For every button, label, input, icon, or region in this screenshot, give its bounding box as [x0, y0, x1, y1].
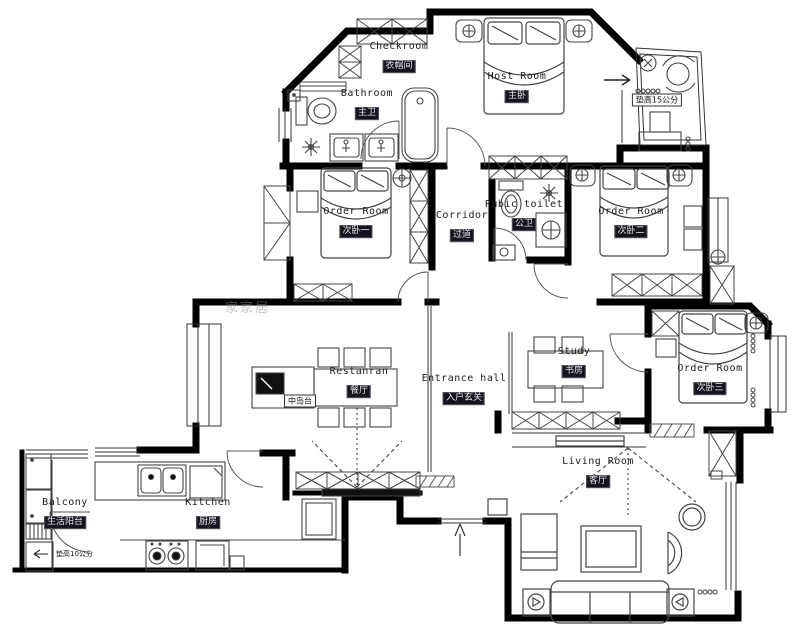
room-name-en: Corridor: [436, 210, 488, 222]
watermark: 家家居: [225, 297, 270, 316]
room-name-cn: 衣帽间: [382, 60, 415, 73]
room-label-balcony: Balcony生活阳台: [42, 497, 88, 529]
room-label-kitchen: Kitchen厨房: [185, 497, 231, 529]
room-label-order-room-1: Order Room次卧一: [323, 206, 388, 238]
room-name-cn: 次卧二: [614, 225, 647, 238]
misc-icons: [300, 82, 346, 91]
room-label-bathroom: Bathroom主卫: [341, 88, 393, 120]
room-label-corridor: Corridor过道: [436, 210, 488, 242]
room-name-cn: 主卫: [355, 107, 379, 120]
room-label-entrance-hall: Entrance hall入户玄关: [422, 373, 507, 405]
room-name-cn: 客厅: [586, 475, 610, 488]
room-name-en: Bathroom: [341, 88, 393, 100]
annotation-island: 中岛台: [284, 395, 316, 408]
room-name-cn: 餐厅: [347, 385, 371, 398]
stove-icon: [146, 541, 188, 570]
room-name-en: Study: [558, 346, 591, 358]
room-name-en: Pubic toilet: [485, 199, 563, 211]
room-name-cn: 次卧三: [693, 382, 726, 395]
room-label-order-room-3: Order Room次卧三: [677, 363, 742, 395]
armchair-icon: [668, 532, 682, 574]
speaker-left-icon: [523, 589, 550, 616]
media-cabinet-icon: [521, 514, 557, 570]
annotation-raise-15: 垫高15公分: [632, 94, 682, 107]
room-name-en: Restanran: [330, 366, 389, 378]
room-label-restaurant: Restanran餐厅: [330, 366, 389, 398]
room-name-cn: 次卧一: [339, 225, 372, 238]
room-name-en: Balcony: [42, 497, 88, 509]
room-label-public-toilet: Pubic toilet公卫: [485, 199, 563, 231]
room-name-en: Order Room: [323, 206, 388, 218]
room-name-cn: 过道: [450, 229, 474, 242]
room-name-en: Entrance hall: [422, 373, 507, 385]
room-name-en: Host Room: [488, 71, 547, 83]
toilet-icon: [296, 97, 336, 125]
room-name-en: Order Room: [677, 363, 742, 375]
double-sink-icon: [330, 134, 398, 161]
room-label-host-room: Host Room主卧: [488, 71, 547, 103]
room-name-cn: 生活阳台: [44, 516, 86, 529]
shower-icon: [302, 138, 320, 156]
room-name-cn: 公卫: [512, 218, 536, 231]
room-name-en: Kitchen: [185, 497, 231, 509]
room-label-order-room-2: Order Room次卧二: [598, 206, 663, 238]
floor-plan-page: Checkroom衣帽间 Bathroom主卫 Host Room主卧 Orde…: [0, 0, 800, 641]
speaker-right-icon: [667, 589, 694, 616]
room-label-living-room: Living Room客厅: [562, 456, 634, 488]
fridge-icon: [302, 499, 336, 539]
coffee-table-icon: [581, 526, 641, 572]
room-label-study: Study书房: [558, 346, 591, 378]
room-name-en: Living Room: [562, 456, 634, 468]
annotation-raise-10: 垫高10公分: [56, 549, 93, 559]
room-label-checkroom: Checkroom衣帽间: [370, 41, 429, 73]
entry-arrow-icon: [455, 524, 465, 556]
room-name-cn: 厨房: [196, 516, 220, 529]
room-name-cn: 书房: [562, 365, 586, 378]
windows: [26, 48, 786, 590]
room-name-en: Checkroom: [370, 41, 429, 53]
room-name-en: Order Room: [598, 206, 663, 218]
tv-icon: [556, 436, 624, 446]
round-table-icon: [679, 504, 705, 530]
washer-icon: [26, 542, 53, 571]
room-name-cn: 主卧: [505, 90, 529, 103]
entrance-icons: [455, 499, 507, 556]
bathtub-icon: [402, 88, 438, 162]
armchair-small-icon: [663, 56, 695, 92]
room-name-cn: 入户玄关: [443, 392, 485, 405]
kitchen-sink-icon: [138, 465, 186, 496]
